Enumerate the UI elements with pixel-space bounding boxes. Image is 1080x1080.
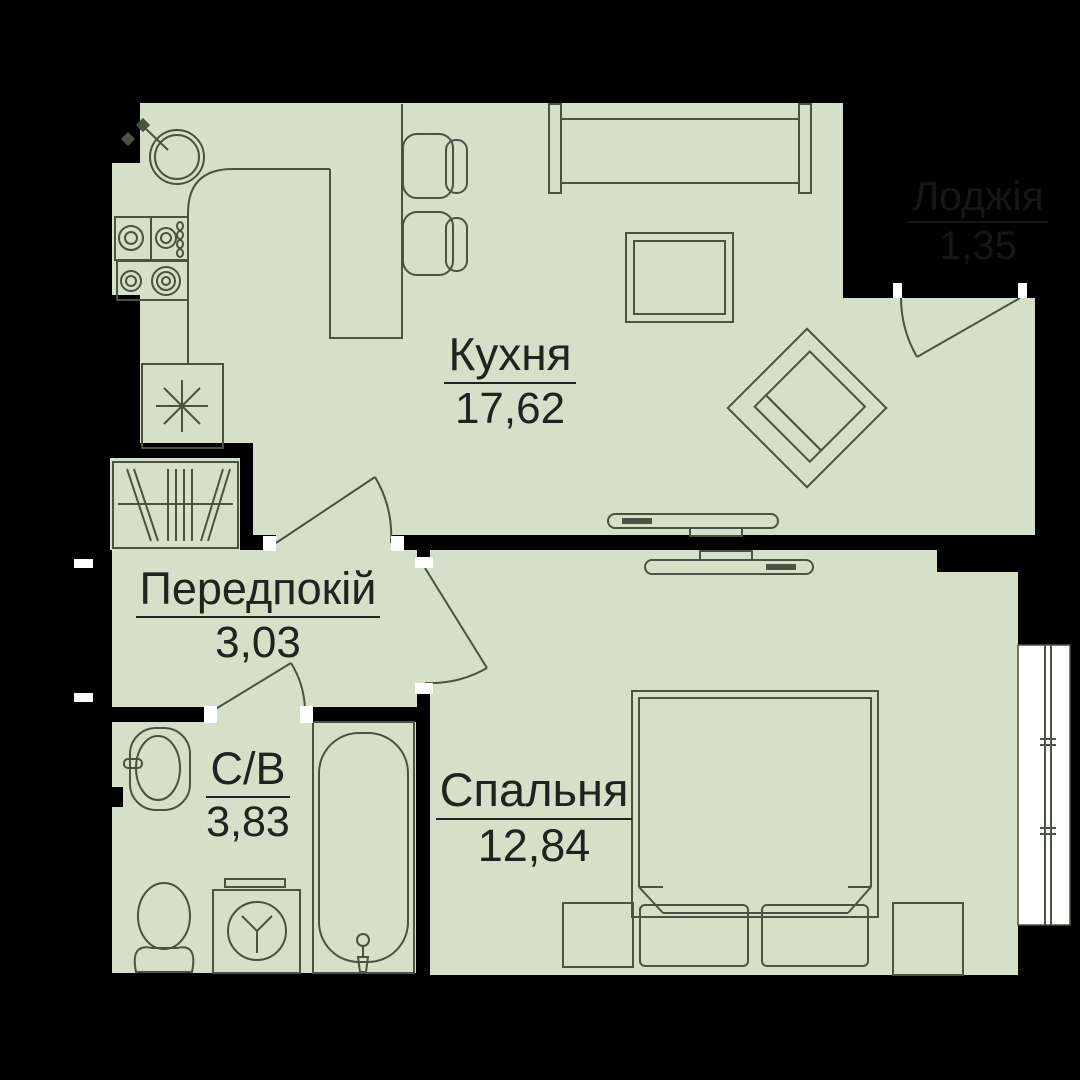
room-label-kitchen: Кухня 17,62: [400, 331, 620, 431]
nightstand: [893, 903, 963, 975]
room-area: 12,84: [428, 823, 640, 868]
room-label-bathroom: С/В 3,83: [178, 746, 318, 844]
washing-machine-icon: [213, 879, 300, 973]
room-name: Передпокій: [136, 566, 381, 618]
bed-pillow: [640, 905, 748, 966]
room-name: С/В: [206, 746, 289, 798]
armchair-icon: [728, 329, 886, 487]
coffee-table-icon: [626, 233, 733, 322]
tv-kitchen-icon: [608, 514, 778, 536]
door-arc-bathroom: [214, 663, 305, 710]
room-label-loggia: Лоджія 1,35: [886, 176, 1070, 266]
plan-graphics: [0, 0, 1080, 1080]
dimension-tick: [74, 559, 93, 702]
window: [1018, 645, 1070, 925]
nightstand: [563, 903, 633, 967]
bed-pillow: [762, 905, 868, 966]
door-arc-loggia: [901, 298, 1020, 357]
room-name: Кухня: [444, 331, 575, 384]
stove-icon: [115, 217, 188, 300]
wardrobe-icon: [113, 462, 238, 548]
room-label-hallway: Передпокій 3,03: [110, 566, 406, 665]
room-area: 1,35: [886, 226, 1070, 266]
bed-icon: [632, 691, 878, 917]
fridge-icon: [142, 364, 223, 448]
kitchen-sink-icon: [121, 118, 204, 184]
kitchen-counter: [188, 104, 402, 363]
door-arc-bedroom: [425, 568, 487, 683]
room-area: 3,83: [178, 801, 318, 844]
room-area: 17,62: [400, 387, 620, 431]
tv-bedroom-icon: [645, 551, 813, 574]
room-area: 3,03: [110, 621, 406, 665]
bar-chair-icon: [403, 212, 467, 275]
door-arc-kitchen: [276, 477, 391, 543]
floor-plan: Кухня 17,62 Передпокій 3,03 С/В 3,83 Спа…: [0, 0, 1080, 1080]
bathtub-icon: [313, 722, 414, 973]
toilet-icon: [135, 883, 194, 972]
room-name: Лоджія: [908, 176, 1047, 223]
room-label-bedroom: Спальня 12,84: [428, 766, 640, 868]
bar-chair-icon: [403, 134, 467, 198]
room-name: Спальня: [436, 766, 633, 820]
sofa-icon: [549, 104, 811, 193]
